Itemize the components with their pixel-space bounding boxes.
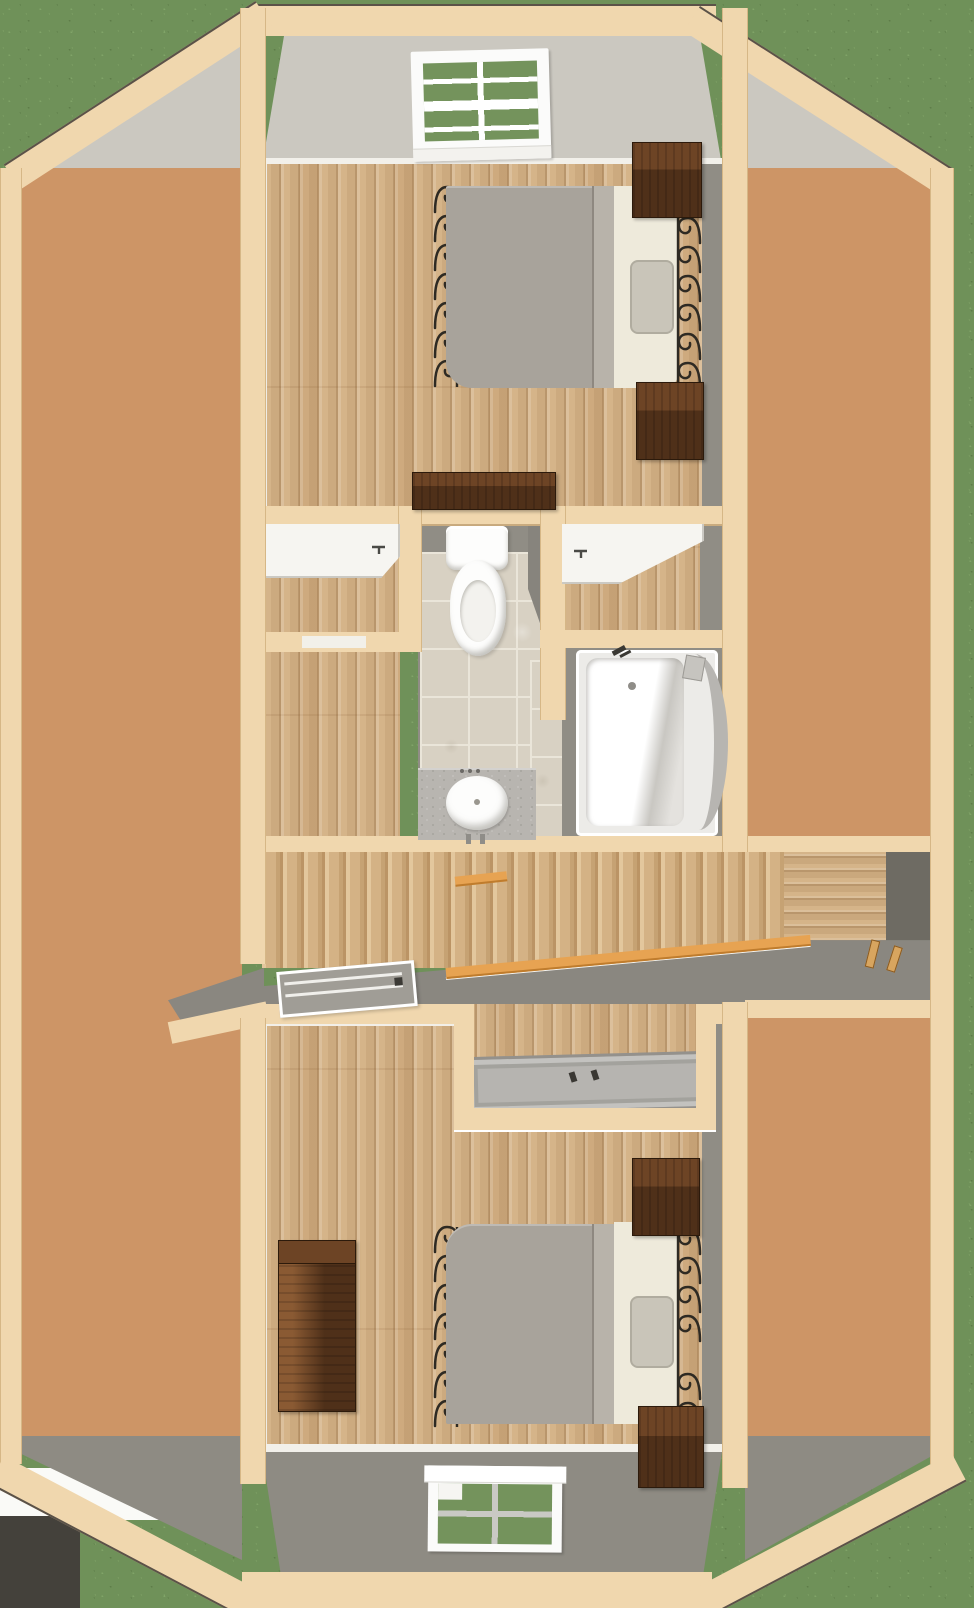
nightstand bbox=[632, 142, 702, 218]
gable-trim-bottom-cap bbox=[242, 1572, 712, 1608]
shower-pan bbox=[465, 1051, 710, 1115]
eave-trim-right bbox=[930, 168, 954, 1464]
bed-duvet bbox=[446, 1224, 614, 1424]
closet-left-door-threshold bbox=[302, 636, 366, 648]
bed-pillow bbox=[630, 1296, 674, 1368]
storage-chest bbox=[412, 472, 556, 510]
window-glass bbox=[423, 61, 539, 142]
sink-drain bbox=[474, 799, 480, 805]
skylight-bar bbox=[284, 972, 402, 985]
closet-right-south-wall-cap bbox=[540, 630, 722, 648]
gable-trim-top-cap bbox=[256, 4, 716, 36]
rod-bracket-icon bbox=[370, 544, 388, 556]
interior-wall-cap-left-upper bbox=[240, 8, 266, 964]
tall-dresser bbox=[278, 1240, 356, 1412]
bed-headboard-iron bbox=[674, 1226, 706, 1432]
eave-trim-left bbox=[0, 168, 22, 1464]
interior-wall-cap-right-lower bbox=[722, 1002, 748, 1488]
bed-duvet bbox=[446, 186, 614, 388]
attic-left-osb-decking bbox=[20, 168, 242, 1436]
top-gable-window bbox=[411, 48, 552, 162]
skylight-handle bbox=[394, 977, 403, 986]
window-glass-notch bbox=[438, 1484, 462, 1500]
sink-faucet bbox=[460, 769, 464, 773]
interior-wall-cap-left-lower bbox=[240, 1018, 266, 1484]
attic-right-osb-lower bbox=[745, 1018, 930, 1436]
bottom-gable-window bbox=[428, 1465, 563, 1552]
rod-bracket-icon bbox=[572, 548, 590, 560]
attic-right-opening-south-cap bbox=[745, 1000, 952, 1018]
attic-right-opening-north-cap bbox=[745, 836, 952, 852]
attic-right-osb-upper bbox=[745, 168, 930, 836]
bed-pillow bbox=[630, 260, 674, 334]
nightstand bbox=[638, 1406, 704, 1488]
dresser-top-face bbox=[279, 1241, 355, 1264]
tub-caddy bbox=[682, 654, 706, 681]
sink-supply-lines bbox=[466, 834, 471, 844]
nightstand bbox=[636, 382, 704, 460]
floor-plan-render bbox=[0, 0, 974, 1608]
driveway-patch bbox=[0, 1516, 80, 1608]
window-head-board bbox=[424, 1465, 566, 1483]
bed-duvet-fold bbox=[592, 1224, 616, 1424]
toilet-seat-ring bbox=[460, 580, 496, 642]
shower-alcove-south-wall-cap bbox=[454, 1108, 716, 1132]
closet-left-divider-wall-cap bbox=[398, 506, 422, 652]
skylight-bar bbox=[285, 984, 403, 997]
bathtub-drain bbox=[628, 682, 636, 690]
bed-bottom bbox=[430, 1218, 706, 1430]
bed-duvet-fold bbox=[592, 186, 616, 388]
nightstand bbox=[632, 1158, 700, 1236]
